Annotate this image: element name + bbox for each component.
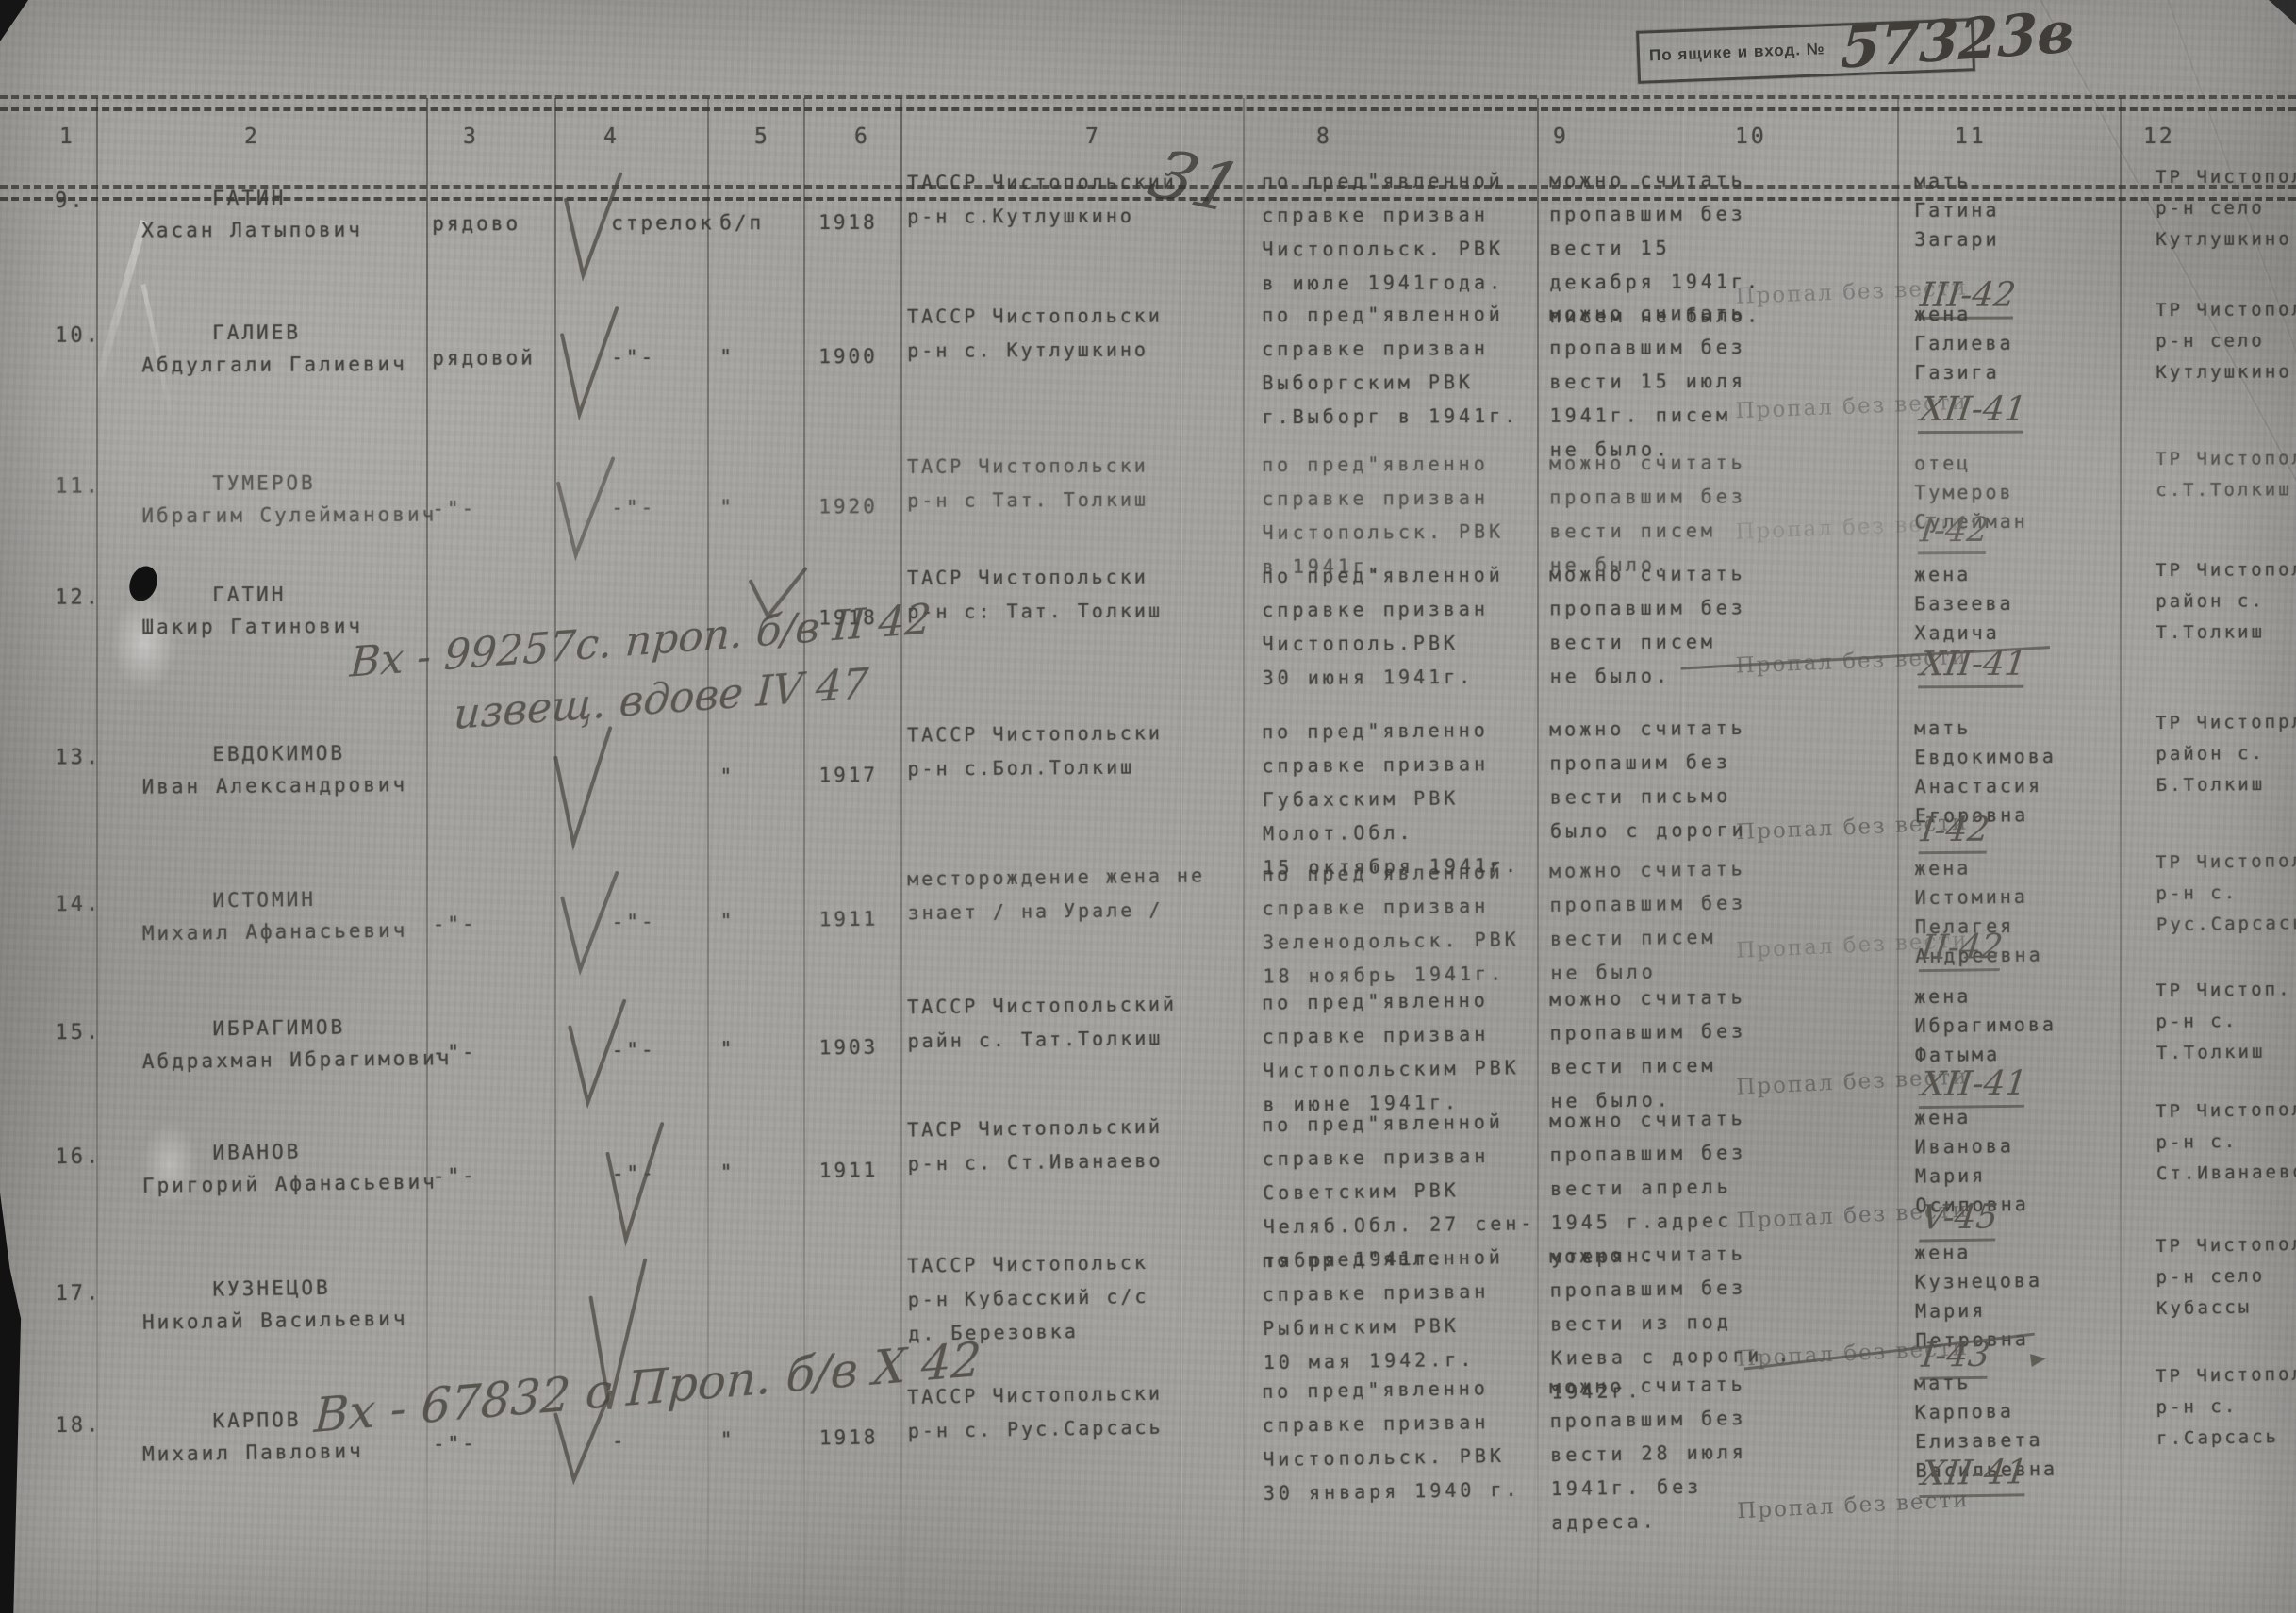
column-header-5: 5 — [754, 124, 770, 149]
cell-missing-line: пропавшим без — [1549, 1141, 1746, 1166]
cell-rank: -"- — [433, 1164, 477, 1188]
cell-missing-line: пропавшим без — [1550, 1276, 1747, 1302]
cell-drafted-line: Чистопольским РВК — [1263, 1056, 1520, 1081]
stamp-label: По ящике и вход. № — [1649, 40, 1825, 65]
date-handwritten: V-45 — [1919, 1197, 2000, 1242]
cell-relative-line: Ибрагимова — [1914, 1012, 2056, 1037]
cell-drafted-line: справке призван — [1262, 337, 1489, 360]
torn-edge-bottom-left — [0, 1193, 25, 1613]
cell-missing-line: можно считать — [1549, 169, 1746, 192]
cell-surname: ГАЛИЕВ — [212, 321, 301, 344]
cell-place-line: р-н с. Ст.Иванаево — [908, 1149, 1164, 1176]
cell-address-line: р-н село — [2156, 331, 2265, 353]
torn-corner-top-left — [0, 0, 28, 41]
date-handwritten: XII-41 — [1919, 1064, 2029, 1109]
row-number: 9. — [55, 189, 86, 213]
cell-missing-line: можно считать — [1549, 1107, 1746, 1132]
cell-drafted-line: по пред"явленно — [1262, 989, 1489, 1014]
cell-birth-year: 1920 — [818, 495, 878, 518]
cell-surname: ГАТИН — [212, 583, 286, 605]
cell-surname: ЕВДОКИМОВ — [212, 742, 345, 765]
cell-missing-line: пропавшим без — [1549, 891, 1746, 916]
cell-surname: ИСТОМИН — [212, 888, 316, 912]
cell-address-line: Б.Толкиш — [2156, 774, 2266, 796]
cell-surname: ИБРАГИМОВ — [212, 1016, 345, 1041]
cell-party: " — [720, 1160, 735, 1183]
cell-missing-line: пропашим без — [1549, 750, 1731, 775]
cell-given-name: Михаил Афанасьевич — [142, 919, 408, 945]
cell-drafted-line: г.Выборг в 1941г. — [1263, 404, 1520, 428]
cell-relative-line: Газига — [1914, 361, 1999, 384]
row-number: 13. — [55, 746, 101, 769]
arrowhead-pencil — [2030, 1352, 2047, 1367]
column-header-9: 9 — [1553, 124, 1569, 149]
cell-address-line: Т.Толкиш — [2156, 1042, 2266, 1063]
cell-missing-line: вести из под — [1550, 1310, 1732, 1336]
cell-relative-line: Кузнецова — [1914, 1269, 2042, 1293]
cell-missing-line: адреса. — [1551, 1509, 1658, 1534]
cell-address-line: Ст.Иванаево — [2156, 1161, 2296, 1184]
cell-drafted-line: по пред"явленной — [1262, 1111, 1504, 1137]
cell-missing-line: вести писем — [1549, 518, 1716, 542]
cell-place-line: ТАСР Чистопольский — [907, 1115, 1163, 1142]
cell-surname: КАРПОВ — [212, 1408, 301, 1432]
checkmark-pencil — [558, 306, 625, 420]
cell-drafted-line: по пред"явленной — [1262, 169, 1504, 192]
cell-drafted-line: Зеленодольск. РВК — [1263, 928, 1520, 953]
paper-hole — [124, 562, 161, 604]
cell-relative-line: жена — [1914, 984, 1971, 1008]
cell-relative-line: Тумеров — [1914, 481, 2013, 504]
column-header-8: 8 — [1316, 124, 1332, 149]
cell-address-line: р-н с. — [2156, 1131, 2238, 1153]
cell-missing-line: пропавшим без — [1549, 203, 1746, 226]
cell-rank: рядовой — [432, 347, 536, 370]
cell-missing-line: вести письмо — [1550, 784, 1732, 809]
cell-address-line: ТР Чистопол. — [2156, 1234, 2296, 1258]
cell-drafted-line: справке призван — [1263, 1410, 1490, 1437]
cell-drafted-line: Чистопольск. РВК — [1262, 520, 1504, 544]
tear-highlight — [111, 596, 177, 690]
row-number: 12. — [55, 585, 101, 609]
cell-drafted-line: Советским РВК — [1263, 1178, 1460, 1204]
cell-party: " — [719, 496, 735, 518]
cell-party: б/п — [719, 211, 764, 234]
cell-rank: рядово — [432, 212, 520, 235]
cell-birth-year: 1917 — [818, 764, 878, 787]
cell-address-line: г.Сарсась — [2156, 1426, 2279, 1449]
cell-missing-line: 1941г. без — [1551, 1475, 1703, 1501]
cell-party: " — [720, 1037, 735, 1060]
cell-drafted-line: справке призван — [1262, 203, 1489, 226]
scratch-mark — [86, 220, 148, 412]
cell-relative-line: жена — [1914, 1106, 1972, 1129]
cell-address-line: ТР Чистопол. — [2156, 1363, 2296, 1387]
cell-missing-line: пропавшим без — [1550, 1407, 1747, 1432]
cell-missing-line: вести писем — [1550, 1054, 1717, 1078]
cell-address-line: ТР Чистоп. — [2156, 979, 2292, 1001]
dashed-rule-top — [0, 95, 2296, 111]
cell-surname: ТУМЕРОВ — [212, 471, 316, 495]
cell-drafted-line: по пред"явленной — [1262, 303, 1504, 326]
cell-birth-year: 1911 — [819, 908, 879, 931]
cell-birth-year: 1918 — [819, 1425, 879, 1449]
cell-surname: ИВАНОВ — [212, 1141, 301, 1164]
cell-rank: -"- — [433, 1432, 477, 1456]
column-header-6: 6 — [854, 124, 870, 149]
column-header-11: 11 — [1955, 124, 1987, 149]
cell-given-name: Михаил Павлович — [142, 1440, 364, 1466]
cell-relative-line: Истомина — [1914, 885, 2028, 909]
torn-corner-top-right — [2269, 0, 2296, 25]
checkmark-pencil — [552, 726, 619, 849]
checkmark-pencil — [603, 1122, 671, 1245]
cell-relative-line: Елизавета — [1915, 1428, 2043, 1453]
cell-place-line: ТАССР Чистопольски — [907, 1382, 1163, 1408]
cell-birth-year: 1911 — [819, 1159, 879, 1182]
cell-given-name: Николай Васильевич — [142, 1308, 408, 1334]
row-number: 14. — [55, 893, 101, 917]
cell-missing-line: не было. — [1550, 665, 1671, 688]
cell-given-name: Шакир Гатинович — [141, 615, 363, 638]
cell-drafted-line: по пред"явленной — [1262, 1245, 1504, 1272]
cell-missing-line: вести апрель — [1550, 1175, 1732, 1200]
cell-place-line: ТАССР Чистопольски — [907, 304, 1163, 328]
cell-place-line: ТАССР Чистопольск — [907, 1251, 1148, 1277]
cell-drafted-line: по пред"явленно — [1262, 453, 1489, 476]
cell-relative-line: Хадича — [1914, 621, 1999, 644]
cell-address-line: р-н с. — [2156, 1396, 2238, 1418]
cell-place-line: райн с. Тат.Толкиш — [907, 1027, 1163, 1052]
cell-rank: -"- — [433, 1041, 477, 1064]
cell-given-name: Иван Александрович — [142, 773, 408, 798]
cell-place-line: р-н с: Тат. Толкиш — [907, 600, 1163, 623]
cell-address-line: ТР Чистопрл. — [2156, 712, 2296, 734]
cell-given-name: Григорий Афанасьевич — [142, 1171, 438, 1197]
cell-drafted-line: по пред"явленно — [1262, 718, 1489, 743]
cell-missing-line: можно считать — [1549, 451, 1746, 474]
cell-missing-line: вести 15 июля — [1549, 370, 1746, 393]
cell-drafted-line: справке призван — [1262, 752, 1489, 777]
cell-address-line: район с. — [2156, 743, 2265, 765]
cell-address-line: р-н село — [2156, 198, 2265, 219]
cell-relative-line: Иванова — [1914, 1134, 2014, 1158]
cell-missing-line: можно считать — [1549, 716, 1746, 741]
column-header-1: 1 — [59, 124, 75, 149]
cell-relative-line: Мария — [1915, 1299, 1987, 1323]
cell-relative-line: отец — [1914, 452, 1971, 474]
date-handwritten: I-42 — [1918, 811, 1990, 855]
checkmark-pencil — [552, 1391, 619, 1486]
cell-relative-line: мать — [1914, 716, 1971, 740]
cell-drafted-line: в июле 1941года. — [1262, 271, 1504, 294]
cell-missing-line: пропавшим без — [1549, 485, 1746, 508]
cell-place-line: р-н с. Рус.Сарсась — [908, 1416, 1164, 1442]
cell-relative-line: Анастасия — [1915, 774, 2043, 798]
cell-party: " — [719, 765, 735, 787]
cell-relative-line: мать — [1914, 1371, 1972, 1394]
cell-address-line: Кутлушкино — [2156, 361, 2291, 383]
column-header-7: 7 — [1085, 124, 1101, 149]
cell-relative-line: мать — [1914, 170, 1971, 192]
cell-place-line: ТАСР Чистопольски — [907, 566, 1148, 589]
cell-address-line: р-н с. — [2156, 882, 2238, 904]
checkmark-pencil — [558, 871, 625, 976]
cell-party: " — [720, 1428, 735, 1451]
cell-drafted-line: Чистополь.РВК — [1262, 632, 1459, 655]
cell-missing-line: можно считать — [1549, 985, 1746, 1011]
cell-drafted-line: 30 января 1940 г. — [1264, 1478, 1521, 1505]
cell-drafted-line: Рыбинским РВК — [1263, 1314, 1460, 1340]
cell-relative-line: Евдокимова — [1914, 745, 2056, 768]
cell-drafted-line: справке призван — [1262, 895, 1489, 920]
row-number: 17. — [55, 1281, 101, 1306]
date-handwritten: XII-41 — [1918, 390, 2028, 435]
cell-address-line: ТР Чистопол. — [2156, 850, 2296, 873]
cell-place-line: месторождение жена не — [907, 864, 1205, 890]
cell-relative-line: жена — [1914, 856, 1971, 880]
cell-address-line: ТР Чистополь. — [2156, 299, 2296, 321]
cell-address-line: р-н село — [2156, 1265, 2265, 1288]
cell-drafted-line: 10 мая 1942.г. — [1264, 1348, 1476, 1374]
cell-rank: -"- — [432, 497, 476, 519]
column-header-3: 3 — [463, 124, 479, 149]
cell-relative-line: Гатина — [1914, 199, 1999, 222]
cell-drafted-line: Губахским РВК — [1263, 787, 1460, 812]
cell-drafted-line: Чистопольск. РВК — [1262, 237, 1504, 260]
date-handwritten: XII-41 — [1919, 1453, 2029, 1498]
cell-relative-line: Фатыма — [1915, 1043, 2001, 1066]
cell-address-line: р-н с. — [2156, 1011, 2238, 1032]
cell-birth-year: 1900 — [818, 345, 878, 368]
cell-place-line: р-н Кубасский с/с — [908, 1285, 1149, 1311]
cell-relative-line: Базеева — [1914, 592, 2013, 616]
row-number: 10. — [55, 324, 101, 348]
column-header-10: 10 — [1735, 124, 1767, 149]
cell-address-line: район с. — [2156, 590, 2265, 612]
cell-drafted-line: 30 июня 1941г. — [1263, 666, 1475, 689]
column-header-12: 12 — [2143, 124, 2175, 149]
cell-relative-line: жена — [1914, 1241, 1972, 1264]
cell-given-name: Хасан Латыпович — [141, 219, 363, 242]
cell-missing-line: можно считать — [1549, 302, 1746, 325]
cell-drafted-line: 18 ноябрь 1941г. — [1263, 963, 1505, 988]
date-handwritten: I-42 — [1918, 511, 1991, 554]
cell-missing-line: декабря 1941г. — [1549, 270, 1761, 293]
cell-relative-line: жена — [1914, 563, 1971, 585]
row-number: 18. — [55, 1413, 101, 1438]
cell-birth-year: 1903 — [819, 1036, 879, 1060]
checkmark-pencil — [566, 999, 633, 1109]
column-header-4: 4 — [603, 124, 619, 149]
cell-relative-line: Галиева — [1914, 332, 2013, 354]
row-number: 16. — [55, 1145, 101, 1170]
cell-relative-line: Карпова — [1914, 1399, 2014, 1424]
cell-missing-line: можно считать — [1549, 857, 1746, 882]
cell-drafted-line: справке призван — [1263, 1144, 1490, 1170]
cell-address-line: ТР Чистопольс — [2156, 559, 2296, 581]
cell-missing-line: можно считать — [1549, 1243, 1746, 1268]
cell-address-line: Т.Толкиш — [2156, 621, 2265, 643]
cell-place-line: р-н с. Кутлушкино — [907, 338, 1148, 362]
cell-address-line: ТР Чистопол. — [2156, 1099, 2296, 1122]
cell-missing-line: пропавшим без — [1549, 1019, 1746, 1045]
cell-drafted-line: Челяб.Обл. 27 сен- — [1264, 1211, 1536, 1238]
cell-missing-line: вести 15 — [1549, 237, 1670, 259]
cell-missing-line: вести 28 июля — [1550, 1440, 1747, 1466]
checkmark-pencil — [554, 457, 621, 561]
cell-drafted-line: Выборгским РВК — [1262, 370, 1474, 394]
cell-rank: -"- — [433, 913, 477, 936]
cell-drafted-line: справке призван — [1262, 598, 1489, 621]
cell-place-line: р-н с.Бол.Толкиш — [907, 756, 1134, 781]
cell-place-line: ТАССР Чистопольский — [907, 171, 1177, 194]
cell-place-line: знает / на Урале / — [907, 898, 1163, 924]
row-number: 11. — [55, 474, 101, 498]
cell-drafted-line: по пред"явленной — [1262, 564, 1504, 587]
cell-place-line: ТАСР Чистопольски — [907, 454, 1148, 478]
cell-missing-line: пропавшим без — [1549, 596, 1746, 619]
cell-missing-line: не было — [1550, 961, 1657, 984]
cell-missing-line: 1941г. писем — [1549, 403, 1731, 427]
cell-missing-line: 1945 г.адрес — [1550, 1209, 1732, 1234]
cell-given-name: Ибрагим Сулейманович — [141, 503, 437, 528]
cell-missing-line: вести писем — [1549, 630, 1716, 653]
cell-drafted-line: Чистопольск. РВК — [1263, 1444, 1505, 1471]
cell-missing-line: можно считать — [1549, 1373, 1746, 1398]
cell-address-line: Кутлушкино — [2156, 229, 2291, 251]
cell-address-line: Рус.Сарсась — [2156, 913, 2296, 935]
cell-drafted-line: по пред"явленной — [1262, 861, 1504, 886]
cell-place-line: р-н с Тат. Толкиш — [907, 488, 1148, 512]
cell-place-line: р-н с.Кутлушкино — [907, 205, 1134, 228]
cell-missing-line: можно считать — [1549, 562, 1746, 585]
column-header-2: 2 — [244, 124, 260, 149]
cell-drafted-line: по пред"явленно — [1262, 1376, 1489, 1403]
cell-birth-year: 1918 — [818, 211, 878, 234]
cell-given-name: Абдулгали Галиевич — [141, 353, 407, 376]
cell-missing-line: вести писем — [1550, 926, 1717, 950]
cell-address-line: ТР Чистополь. — [2156, 166, 2296, 188]
cell-place-line: ТАССР Чистопольски — [907, 721, 1163, 746]
date-handwritten: II-42 — [1919, 928, 2006, 972]
cell-missing-line: было с дороги — [1550, 818, 1747, 843]
cell-relative-line: Мария — [1915, 1164, 1987, 1188]
cell-relative-line: Загари — [1914, 228, 1999, 251]
cell-address-line: ТР Чистопольс. — [2156, 448, 2296, 469]
cell-drafted-line: справке призван — [1263, 1280, 1490, 1307]
cell-drafted-line: справке призван — [1262, 1023, 1489, 1048]
cell-surname: КУЗНЕЦОВ — [212, 1276, 330, 1301]
cell-missing-line: пропавшим без — [1549, 336, 1746, 359]
cell-party: " — [719, 346, 735, 369]
cell-address-line: Кубассы — [2156, 1297, 2252, 1319]
cell-given-name: Абдрахман Ибрагимович — [142, 1046, 453, 1073]
row-number: 15. — [55, 1021, 101, 1045]
cell-surname: ГАТИН — [212, 187, 286, 209]
cell-relative-line: жена — [1914, 303, 1971, 325]
cell-drafted-line: справке призван — [1262, 486, 1489, 510]
cell-address-line: с.Т.Толкиш — [2156, 479, 2292, 501]
fold-crease-vertical — [1180, 0, 1183, 1613]
checkmark-pencil — [562, 173, 628, 281]
cell-place-line: ТАССР Чистопольский — [907, 993, 1177, 1018]
cell-party: " — [720, 909, 735, 931]
cell-drafted-line: Молот.Обл. — [1263, 821, 1414, 845]
